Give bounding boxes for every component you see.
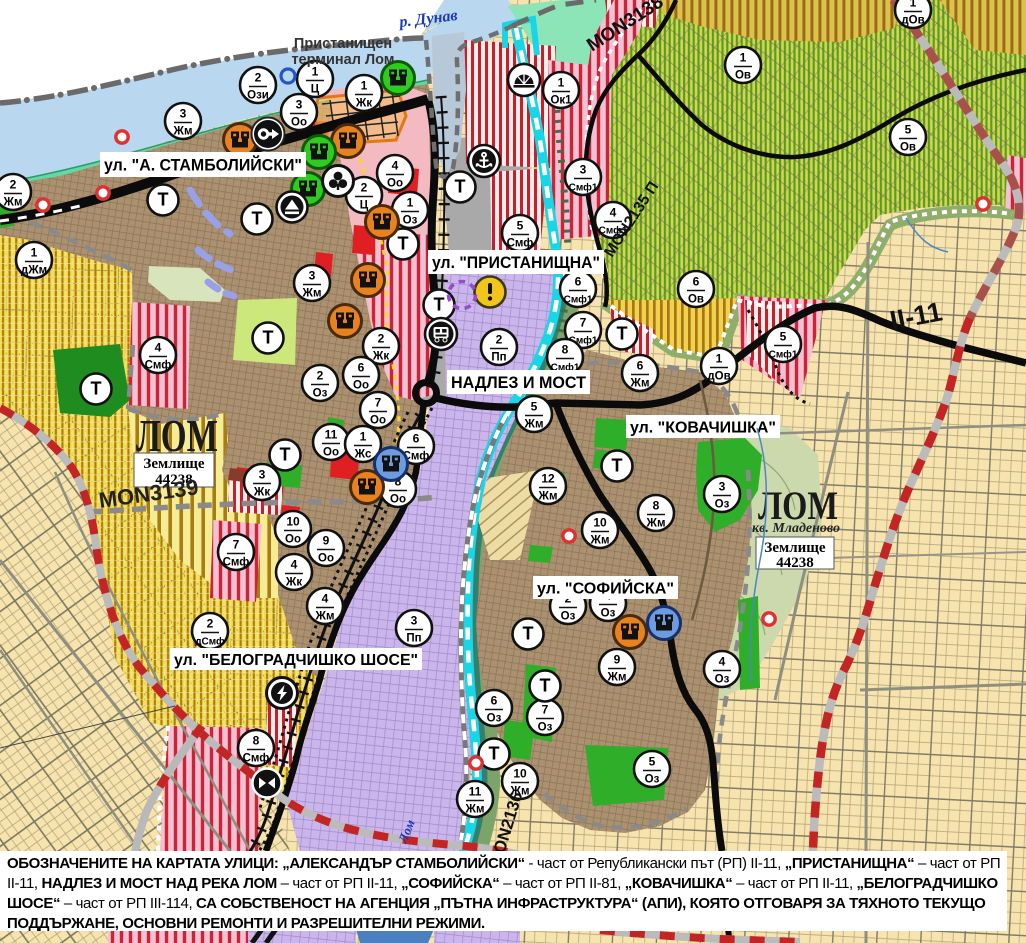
svg-text:Т: Т xyxy=(523,624,534,644)
svg-text:1: 1 xyxy=(716,352,723,366)
svg-text:7: 7 xyxy=(233,538,240,552)
svg-text:Жм: Жм xyxy=(302,288,322,300)
svg-text:11: 11 xyxy=(325,428,338,442)
svg-text:Оо: Оо xyxy=(318,553,334,565)
svg-text:НАДЛЕЗ И МОСТ: НАДЛЕЗ И МОСТ xyxy=(451,373,587,392)
svg-text:Оз: Оз xyxy=(561,611,576,623)
svg-text:5: 5 xyxy=(905,123,912,137)
svg-text:Смф1: Смф1 xyxy=(564,294,593,306)
svg-text:Ов: Ов xyxy=(735,70,751,82)
svg-text:8: 8 xyxy=(562,343,569,357)
svg-text:7: 7 xyxy=(542,703,549,717)
svg-text:Т: Т xyxy=(398,234,409,254)
svg-text:терминал Лом: терминал Лом xyxy=(291,52,394,68)
svg-text:Жм: Жм xyxy=(315,611,335,623)
svg-text:ул. "СОФИЙСКА": ул. "СОФИЙСКА" xyxy=(537,578,674,597)
svg-text:6: 6 xyxy=(693,275,700,289)
svg-text:Оз: Оз xyxy=(487,713,502,725)
svg-text:2: 2 xyxy=(378,332,385,346)
svg-text:2: 2 xyxy=(207,617,214,631)
svg-text:Землище: Землище xyxy=(143,456,205,472)
svg-text:Т: Т xyxy=(91,379,102,399)
svg-text:Оз: Оз xyxy=(645,774,660,786)
svg-text:3: 3 xyxy=(180,107,187,121)
svg-text:Ов: Ов xyxy=(688,294,704,306)
svg-text:дОв: дОв xyxy=(901,15,924,27)
svg-text:4: 4 xyxy=(719,655,726,669)
svg-text:Оз: Оз xyxy=(538,722,553,734)
svg-text:Т: Т xyxy=(612,456,623,476)
svg-text:7: 7 xyxy=(580,316,587,330)
svg-text:Жм: Жм xyxy=(538,491,558,503)
svg-text:дСмф: дСмф xyxy=(195,636,225,648)
svg-text:Смф: Смф xyxy=(507,238,534,250)
svg-text:Смф1: Смф1 xyxy=(569,182,598,194)
svg-text:Пп: Пп xyxy=(406,633,421,645)
svg-text:3: 3 xyxy=(719,480,726,494)
svg-text:8: 8 xyxy=(653,499,660,513)
svg-text:Землище: Землище xyxy=(764,540,826,556)
svg-text:Ц: Ц xyxy=(311,84,320,96)
svg-text:дЖм: дЖм xyxy=(21,265,47,277)
svg-text:Оо: Оо xyxy=(390,494,406,506)
svg-text:Смф: Смф xyxy=(223,557,250,569)
svg-text:Т: Т xyxy=(158,190,169,210)
svg-text:Жк: Жк xyxy=(285,577,302,589)
svg-text:6: 6 xyxy=(358,361,365,375)
svg-text:4: 4 xyxy=(291,558,298,572)
svg-text:Оз: Оз xyxy=(715,499,730,511)
svg-text:Жк: Жк xyxy=(253,487,270,499)
svg-text:1: 1 xyxy=(407,196,414,210)
svg-text:Оо: Оо xyxy=(285,534,301,546)
svg-text:Т: Т xyxy=(617,324,628,344)
svg-text:3: 3 xyxy=(259,468,266,482)
svg-text:Жм: Жм xyxy=(524,419,544,431)
svg-text:11: 11 xyxy=(469,785,482,799)
svg-text:4: 4 xyxy=(322,592,329,606)
svg-text:12: 12 xyxy=(541,472,555,486)
svg-text:1: 1 xyxy=(910,0,917,10)
svg-text:9: 9 xyxy=(614,653,621,667)
svg-text:Смф: Смф xyxy=(145,360,172,372)
svg-text:Жм: Жм xyxy=(465,804,485,816)
svg-text:Ози: Ози xyxy=(247,90,269,102)
svg-text:Оз: Оз xyxy=(601,608,616,620)
svg-text:Жм: Жм xyxy=(646,518,666,530)
svg-text:Ц: Ц xyxy=(360,200,369,212)
svg-text:5: 5 xyxy=(649,755,656,769)
svg-text:3: 3 xyxy=(580,163,587,177)
svg-text:Ов: Ов xyxy=(900,142,916,154)
svg-text:Т: Т xyxy=(489,744,500,764)
svg-text:Оз: Оз xyxy=(715,674,730,686)
svg-text:6: 6 xyxy=(575,275,582,289)
svg-text:Оз: Оз xyxy=(403,215,418,227)
svg-text:Т: Т xyxy=(252,209,263,229)
svg-text:Жм: Жм xyxy=(630,378,650,390)
svg-text:5: 5 xyxy=(780,330,787,344)
svg-text:Т: Т xyxy=(455,177,466,197)
svg-text:6: 6 xyxy=(413,432,420,446)
svg-text:Т: Т xyxy=(263,328,274,348)
svg-text:ул. "КОВАЧИШКА": ул. "КОВАЧИШКА" xyxy=(630,419,776,436)
svg-text:Жм: Жм xyxy=(607,672,627,684)
svg-text:Жм: Жм xyxy=(590,535,610,547)
svg-text:10: 10 xyxy=(513,767,527,781)
svg-text:1: 1 xyxy=(360,430,367,444)
svg-text:3: 3 xyxy=(411,614,418,628)
svg-text:10: 10 xyxy=(286,515,300,529)
svg-text:Оо: Оо xyxy=(370,415,386,427)
svg-text:Т: Т xyxy=(280,445,291,465)
svg-text:44238: 44238 xyxy=(776,555,814,571)
svg-text:3: 3 xyxy=(296,98,303,112)
svg-text:6: 6 xyxy=(491,694,498,708)
svg-text:Оо: Оо xyxy=(353,380,369,392)
svg-text:1: 1 xyxy=(558,76,565,90)
svg-text:Оо: Оо xyxy=(387,178,403,190)
svg-text:2: 2 xyxy=(255,71,262,85)
svg-text:Смф1: Смф1 xyxy=(769,349,798,361)
svg-text:1: 1 xyxy=(740,51,747,65)
svg-text:8: 8 xyxy=(253,734,260,748)
svg-text:Жм: Жм xyxy=(3,197,23,209)
svg-text:ул. "ПРИСТАНИЩНА": ул. "ПРИСТАНИЩНА" xyxy=(432,253,600,272)
svg-text:Т: Т xyxy=(434,295,445,315)
svg-text:Жк: Жк xyxy=(372,351,389,363)
svg-text:9: 9 xyxy=(323,534,330,548)
svg-text:Пристанищен: Пристанищен xyxy=(294,36,392,52)
svg-text:2: 2 xyxy=(361,181,368,195)
svg-text:1: 1 xyxy=(361,79,368,93)
svg-text:4: 4 xyxy=(610,206,617,220)
svg-text:дОв: дОв xyxy=(707,371,730,383)
svg-text:2: 2 xyxy=(10,178,17,192)
svg-text:7: 7 xyxy=(375,396,382,410)
svg-text:4: 4 xyxy=(155,341,162,355)
svg-text:Жк: Жк xyxy=(355,98,372,110)
svg-text:Оз: Оз xyxy=(313,388,328,400)
svg-text:Пп: Пп xyxy=(491,352,506,364)
svg-text:Жм: Жм xyxy=(173,126,193,138)
svg-text:ул. "БЕЛОГРАДЧИШКО ШОСЕ": ул. "БЕЛОГРАДЧИШКО ШОСЕ" xyxy=(174,652,418,669)
svg-text:2: 2 xyxy=(496,333,503,347)
svg-text:Смф: Смф xyxy=(243,753,270,765)
svg-text:6: 6 xyxy=(637,359,644,373)
svg-text:ул. "А. СТАМБОЛИЙСКИ": ул. "А. СТАМБОЛИЙСКИ" xyxy=(104,156,302,175)
svg-text:Т: Т xyxy=(540,676,551,696)
svg-text:3: 3 xyxy=(309,269,316,283)
svg-text:Оо: Оо xyxy=(291,117,307,129)
svg-text:Ок1: Ок1 xyxy=(550,95,572,107)
svg-text:5: 5 xyxy=(517,219,524,233)
svg-text:10: 10 xyxy=(593,516,607,530)
svg-text:Оо: Оо xyxy=(323,447,339,459)
svg-text:5: 5 xyxy=(531,400,538,414)
svg-text:Жс: Жс xyxy=(354,449,372,461)
svg-text:4: 4 xyxy=(392,159,399,173)
svg-text:1: 1 xyxy=(31,246,38,260)
svg-text:2: 2 xyxy=(317,369,324,383)
